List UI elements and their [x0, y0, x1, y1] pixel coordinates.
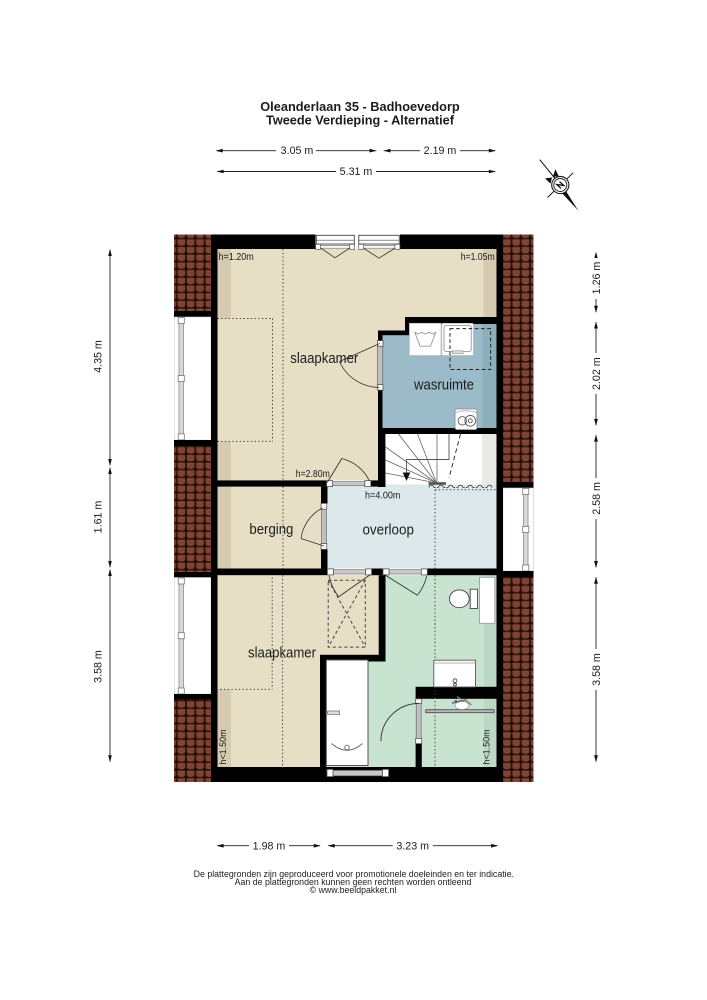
svg-text:4.35 m: 4.35 m — [93, 340, 105, 373]
svg-text:slaapkamer: slaapkamer — [248, 645, 316, 662]
svg-text:wasruimte: wasruimte — [413, 377, 474, 394]
svg-text:2.19 m: 2.19 m — [424, 145, 457, 157]
svg-text:1.98 m: 1.98 m — [253, 841, 286, 853]
svg-text:h=4.00m: h=4.00m — [365, 491, 400, 502]
svg-text:h=1.20m: h=1.20m — [219, 252, 254, 263]
svg-text:berging: berging — [249, 521, 293, 538]
svg-text:overloop: overloop — [362, 522, 414, 539]
svg-text:3.58 m: 3.58 m — [93, 650, 105, 683]
svg-text:2.58 m: 2.58 m — [591, 482, 603, 515]
svg-text:5.31 m: 5.31 m — [340, 166, 373, 178]
svg-text:h=2.80m: h=2.80m — [296, 469, 330, 480]
svg-text:h<1.50m: h<1.50m — [482, 729, 492, 764]
svg-text:3.05 m: 3.05 m — [281, 145, 314, 157]
svg-text:1.61 m: 1.61 m — [93, 501, 105, 534]
svg-text:3.58 m: 3.58 m — [591, 653, 603, 686]
svg-text:1.26 m: 1.26 m — [591, 262, 603, 295]
svg-text:h=1.05m: h=1.05m — [461, 252, 495, 263]
svg-text:Tweede Verdieping - Alternatie: Tweede Verdieping - Alternatief — [266, 112, 455, 127]
svg-text:h<1.50m: h<1.50m — [218, 729, 228, 764]
svg-text:2.02 m: 2.02 m — [591, 357, 603, 390]
svg-text:© www.beeldpakket.nl: © www.beeldpakket.nl — [310, 885, 397, 895]
svg-text:3.23 m: 3.23 m — [396, 841, 429, 853]
svg-text:slaapkamer: slaapkamer — [290, 350, 358, 367]
